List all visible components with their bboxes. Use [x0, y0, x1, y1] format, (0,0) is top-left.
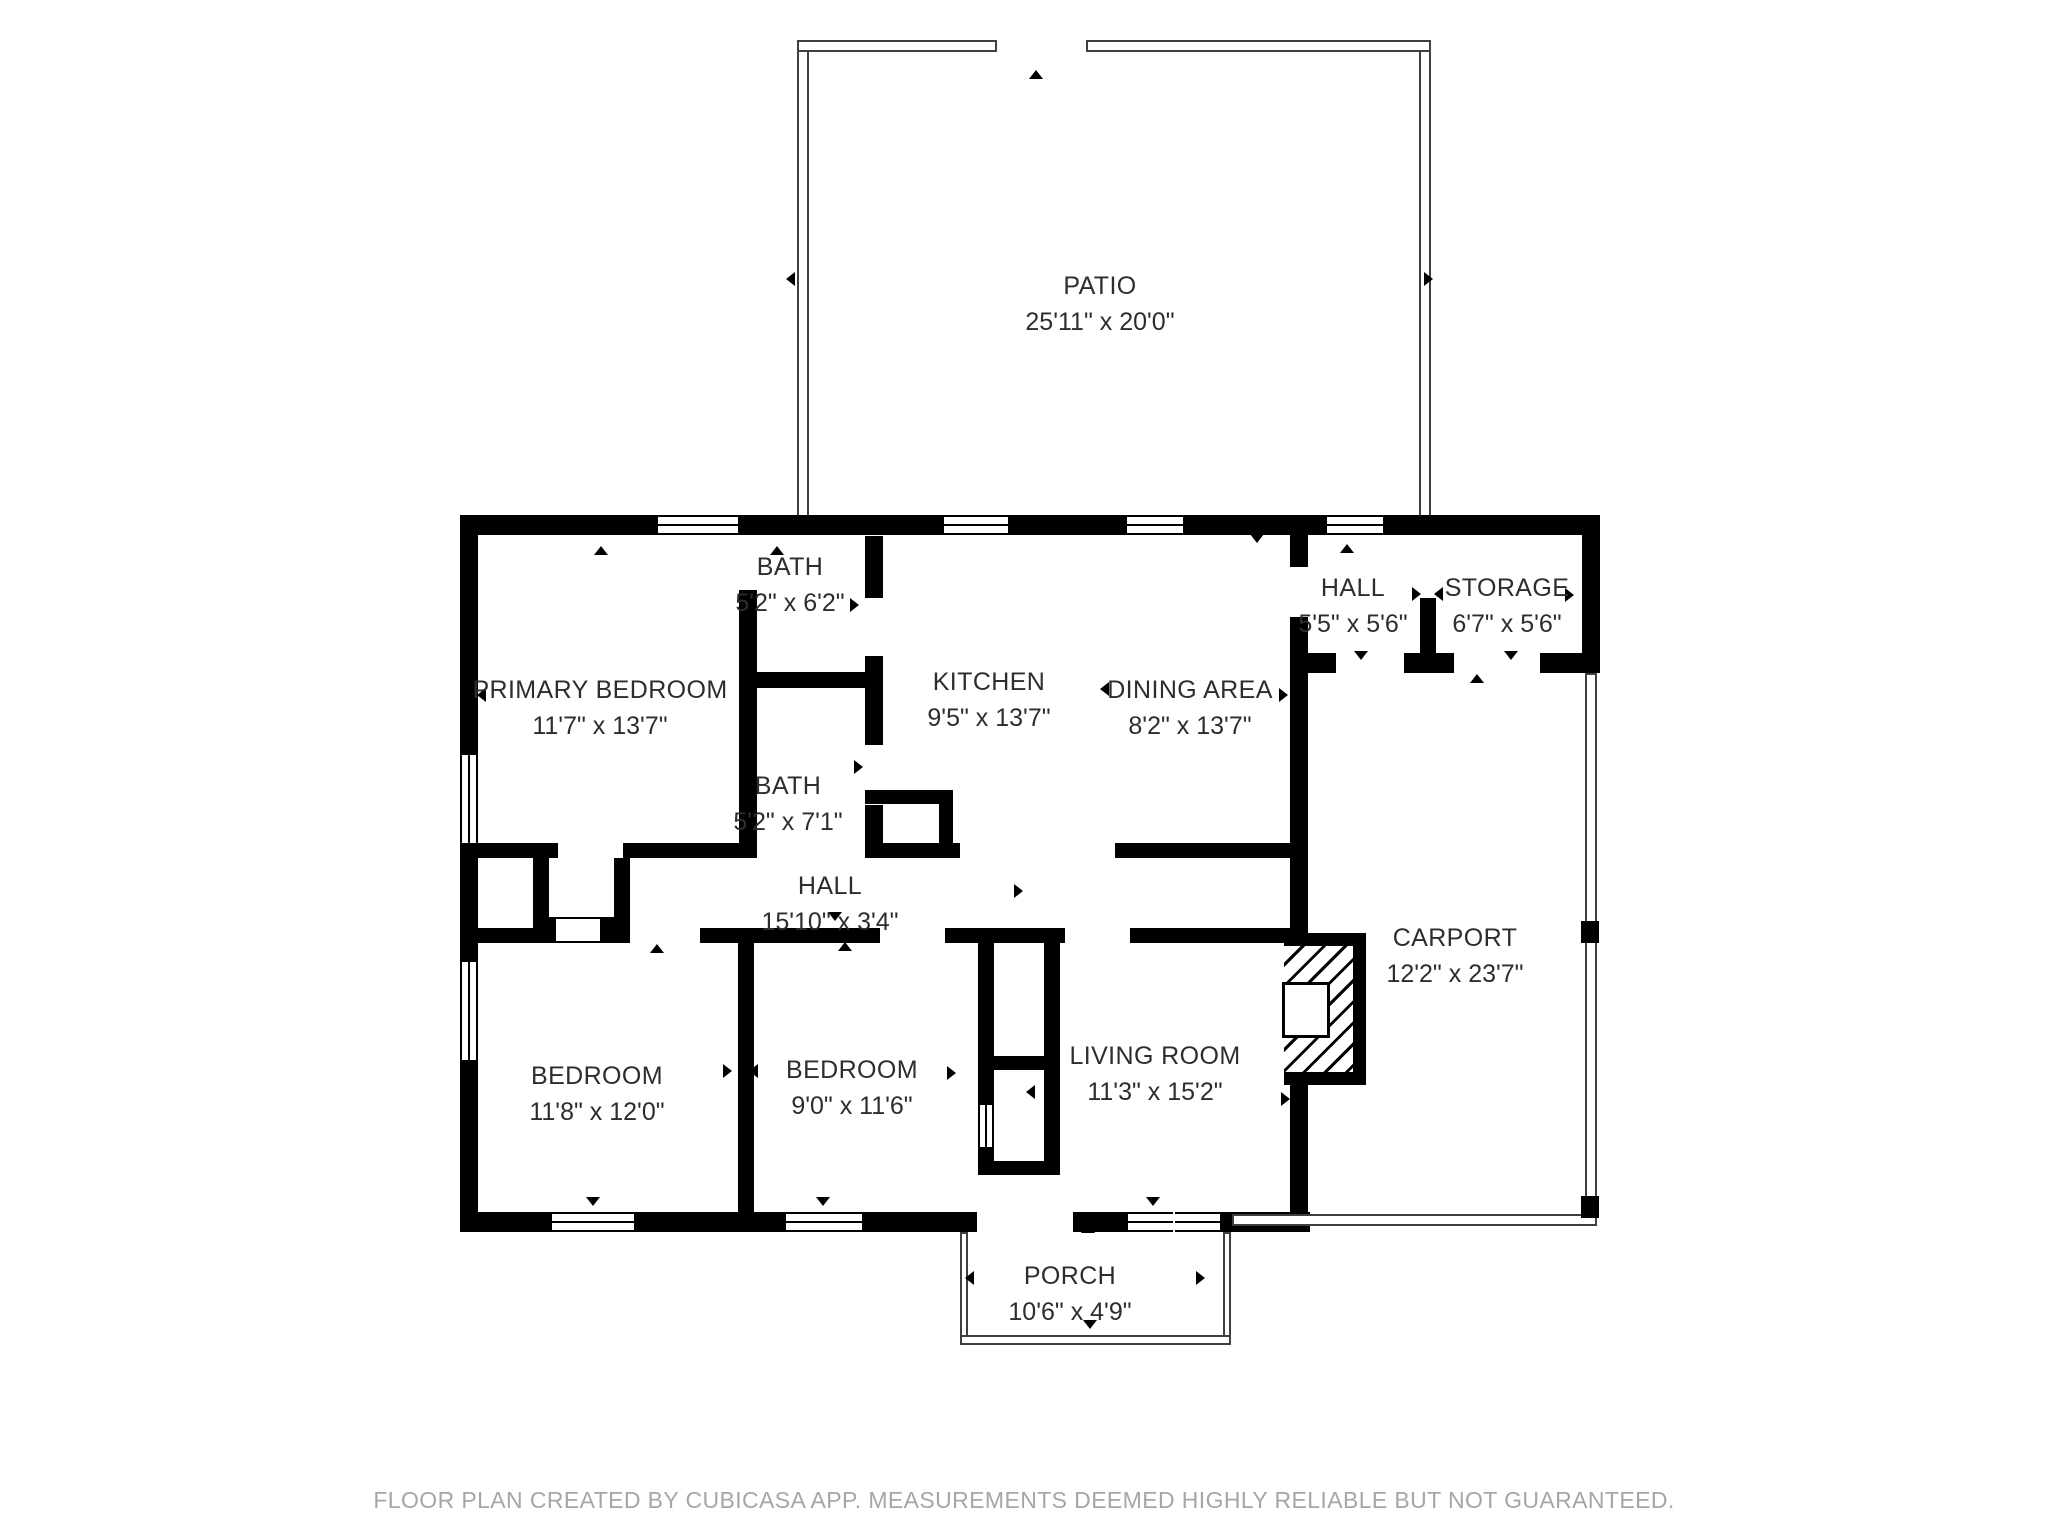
- footer-disclaimer: FLOOR PLAN CREATED BY CUBICASA APP. MEAS…: [0, 1487, 2048, 1514]
- room-name: DINING AREA: [1065, 676, 1315, 705]
- room-dimensions: 6'7" x 5'6": [1407, 610, 1607, 639]
- porch-wall: [960, 1335, 1231, 1345]
- carport-edge: [1232, 1214, 1597, 1226]
- patio-wall: [797, 40, 997, 52]
- room-name: BEDROOM: [702, 1056, 1002, 1085]
- room-dimensions: 9'0" x 11'6": [702, 1092, 1002, 1121]
- closet-wall: [978, 1161, 1060, 1175]
- porch-wall: [1223, 1232, 1231, 1342]
- room-name: BATH: [690, 553, 890, 582]
- room-dimensions: 25'11" x 20'0": [950, 308, 1250, 337]
- room-label-hall-upper: HALL 5'5" x 5'6": [1278, 574, 1428, 639]
- floor-plan-canvas: PATIO 25'11" x 20'0" BATH 5'2" x 6'2" PR…: [0, 0, 2048, 1536]
- patio-wall: [797, 40, 809, 523]
- room-label-storage: STORAGE 6'7" x 5'6": [1407, 574, 1607, 639]
- room-dimensions: 5'2" x 7'1": [688, 808, 888, 837]
- window: [552, 1212, 634, 1232]
- room-name: BATH: [688, 772, 888, 801]
- window: [1128, 1212, 1173, 1232]
- room-name: PRIMARY BEDROOM: [450, 676, 750, 705]
- wall-segment: [1540, 653, 1600, 673]
- door-arrow-icon: [838, 942, 852, 951]
- room-name: KITCHEN: [889, 668, 1089, 697]
- door-opening: [556, 919, 600, 941]
- room-label-kitchen: KITCHEN 9'5" x 13'7": [889, 668, 1089, 733]
- door-arrow-icon: [1504, 651, 1518, 660]
- window: [460, 962, 478, 1060]
- door-arrow-icon: [1424, 272, 1433, 286]
- room-dimensions: 8'2" x 13'7": [1065, 712, 1315, 741]
- room-name: HALL: [1278, 574, 1428, 603]
- room-name: STORAGE: [1407, 574, 1607, 603]
- wall-segment: [473, 843, 558, 858]
- window: [944, 515, 1008, 535]
- closet-wall: [978, 943, 994, 1056]
- room-label-living-room: LIVING ROOM 11'3" x 15'2": [1005, 1042, 1305, 1107]
- wall-segment: [1130, 928, 1290, 943]
- room-label-primary-bedroom: PRIMARY BEDROOM 11'7" x 13'7": [450, 676, 750, 741]
- window: [460, 755, 478, 843]
- wall-segment: [623, 843, 739, 858]
- room-name: CARPORT: [1305, 924, 1605, 953]
- door-arrow-icon: [1340, 544, 1354, 553]
- window: [658, 515, 738, 535]
- room-dimensions: 12'2" x 23'7": [1305, 960, 1605, 989]
- room-dimensions: 9'5" x 13'7": [889, 704, 1089, 733]
- wall-segment: [883, 843, 960, 858]
- door-arrow-icon: [1029, 70, 1043, 79]
- door-arrow-icon: [586, 1197, 600, 1206]
- door-arrow-icon: [1014, 884, 1023, 898]
- door-arrow-icon: [1146, 1197, 1160, 1206]
- room-dimensions: 11'7" x 13'7": [450, 712, 750, 741]
- room-label-patio: PATIO 25'11" x 20'0": [950, 272, 1250, 337]
- patio-wall: [1086, 40, 1431, 52]
- wall-segment: [460, 515, 1600, 535]
- wall-segment: [1290, 515, 1308, 567]
- room-dimensions: 11'3" x 15'2": [1005, 1078, 1305, 1107]
- room-dimensions: 5'2" x 6'2": [690, 589, 890, 618]
- window: [1327, 515, 1383, 535]
- door-arrow-icon: [816, 1197, 830, 1206]
- door-arrow-icon: [786, 272, 795, 286]
- room-label-hall: HALL 15'10" x 3'4": [680, 872, 980, 937]
- room-dimensions: 15'10" x 3'4": [680, 908, 980, 937]
- room-label-dining-area: DINING AREA 8'2" x 13'7": [1065, 676, 1315, 741]
- carport-post: [1581, 1196, 1599, 1218]
- door-arrow-icon: [1470, 674, 1484, 683]
- room-name: HALL: [680, 872, 980, 901]
- firebox: [1282, 982, 1330, 1038]
- wall-segment: [865, 656, 883, 745]
- room-name: PORCH: [920, 1262, 1220, 1291]
- room-name: PATIO: [950, 272, 1250, 301]
- window: [1127, 515, 1183, 535]
- room-label-bath-lower: BATH 5'2" x 7'1": [688, 772, 888, 837]
- door-arrow-icon: [594, 546, 608, 555]
- window: [1175, 1212, 1220, 1232]
- door-arrow-icon: [1081, 1224, 1095, 1233]
- room-label-porch: PORCH 10'6" x 4'9": [920, 1262, 1220, 1327]
- room-name: LIVING ROOM: [1005, 1042, 1305, 1071]
- wall-segment: [1290, 1085, 1308, 1232]
- room-label-bath-upper: BATH 5'2" x 6'2": [690, 553, 890, 618]
- wall-segment: [1115, 843, 1290, 858]
- room-dimensions: 5'5" x 5'6": [1278, 610, 1428, 639]
- room-label-carport: CARPORT 12'2" x 23'7": [1305, 924, 1605, 989]
- door-arrow-icon: [650, 944, 664, 953]
- window: [786, 1212, 862, 1232]
- door-arrow-icon: [1354, 651, 1368, 660]
- wall-segment: [460, 1212, 977, 1232]
- room-dimensions: 10'6" x 4'9": [920, 1298, 1220, 1327]
- room-label-bedroom-middle: BEDROOM 9'0" x 11'6": [702, 1056, 1002, 1121]
- wall-segment: [473, 928, 533, 943]
- wall-segment: [739, 672, 883, 688]
- door-arrow-icon: [1250, 534, 1264, 543]
